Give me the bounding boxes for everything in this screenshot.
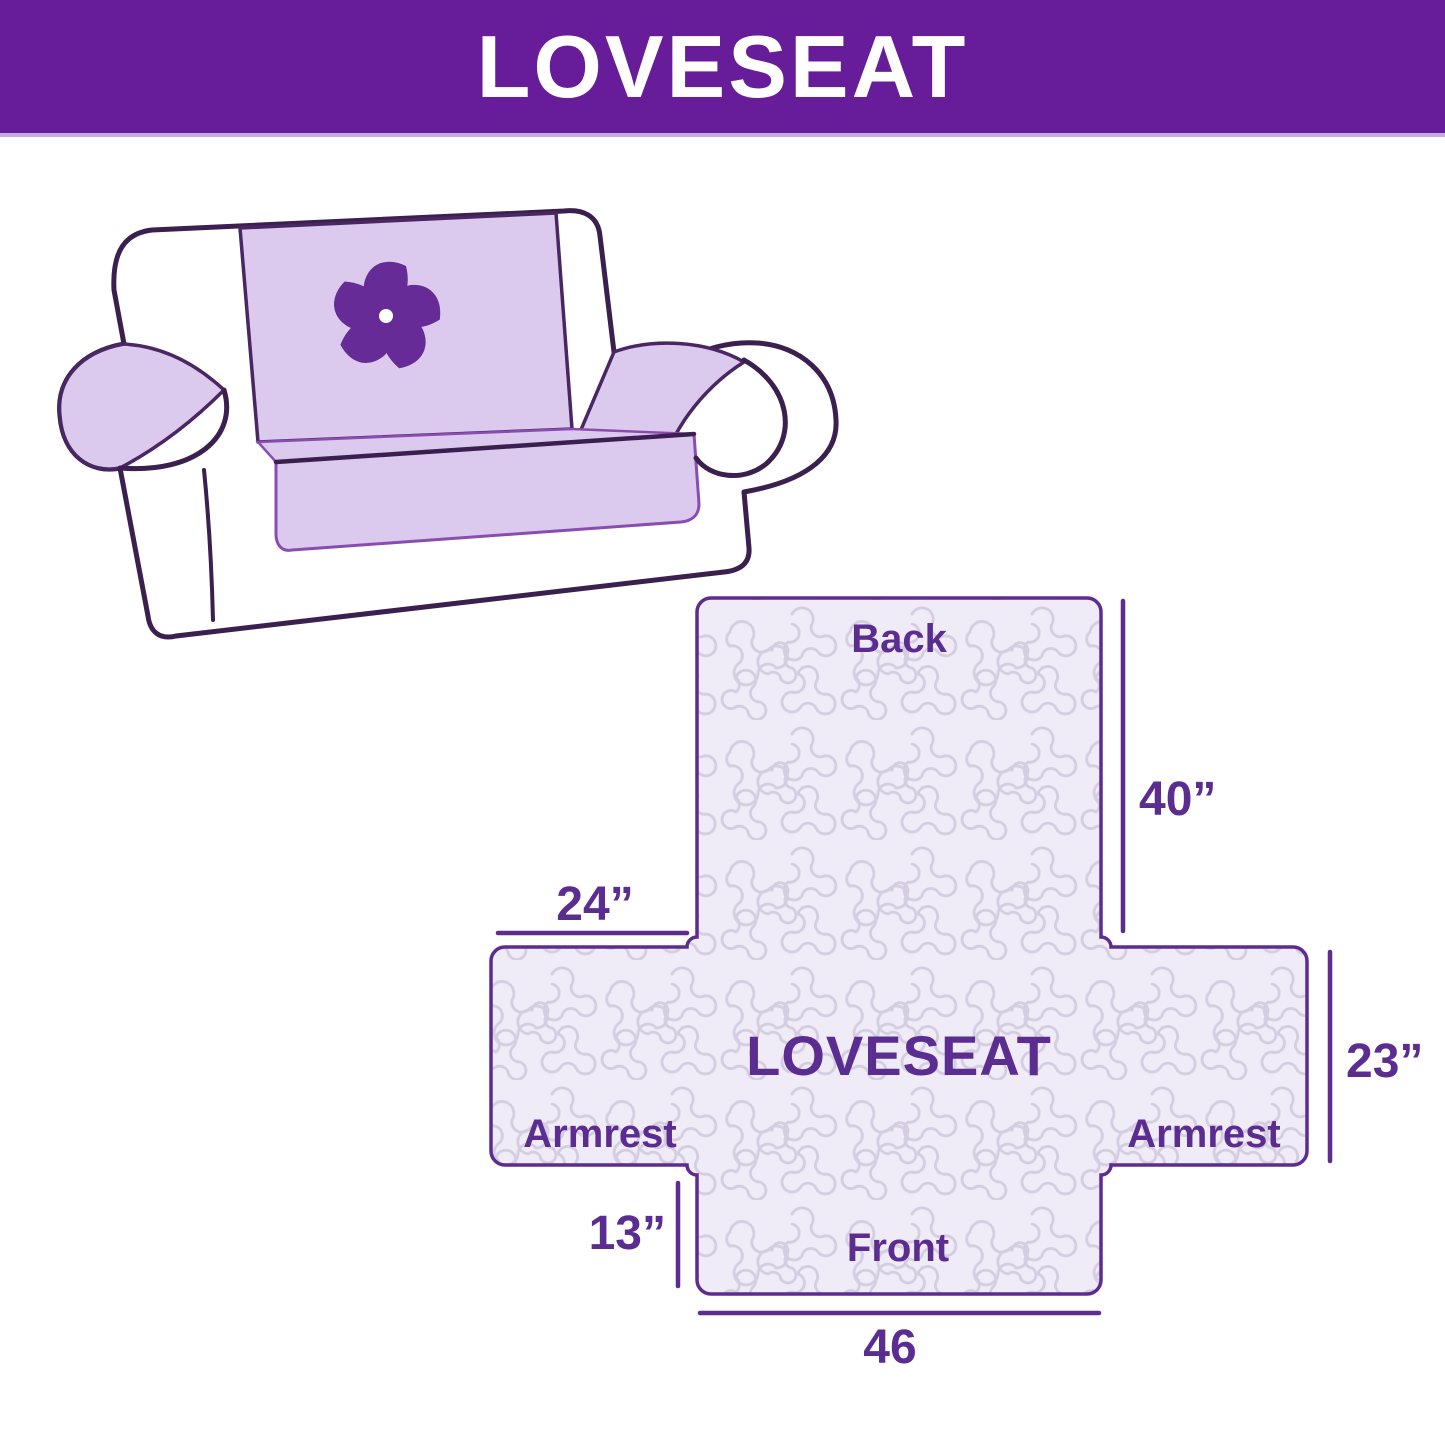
dim-armrest-top-value: 24” [502,881,688,929]
dimension-diagram [491,598,1330,1313]
dim-front-drop-value: 13” [518,1210,666,1258]
armrest-left-label: Armrest [500,1112,700,1156]
armrest-right-label: Armrest [1104,1112,1304,1156]
back-panel-label: Back [799,617,999,661]
infographic-canvas [0,0,1445,1445]
diagram-center-label: LOVESEAT [697,1025,1101,1087]
front-panel-label: Front [798,1226,998,1270]
cover-cross-shape [491,598,1307,1294]
dim-front-width-value: 46 [790,1324,990,1372]
dim-back-height-value: 40” [1139,776,1216,824]
dim-armrest-side-value: 23” [1346,1038,1423,1086]
sofa-illustration [60,211,837,637]
